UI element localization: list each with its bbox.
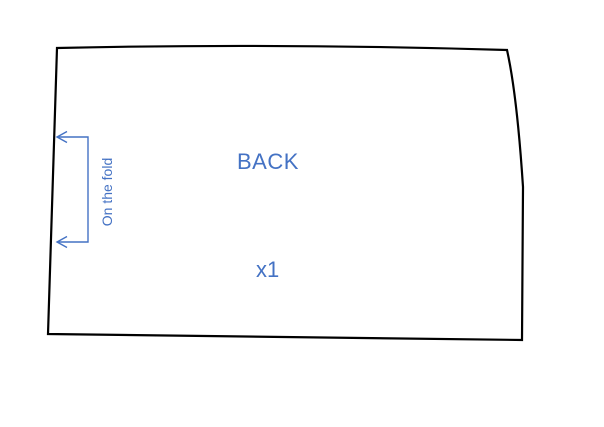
- fold-bracket: [58, 137, 88, 242]
- sewing-pattern-canvas: BACK x1 On the fold: [0, 0, 604, 427]
- pattern-drawing: BACK x1 On the fold: [0, 0, 604, 427]
- pattern-piece-outline: [48, 46, 523, 340]
- quantity-label: x1: [256, 257, 279, 282]
- pattern-name-label: BACK: [237, 149, 299, 174]
- fold-note-label: On the fold: [99, 158, 115, 227]
